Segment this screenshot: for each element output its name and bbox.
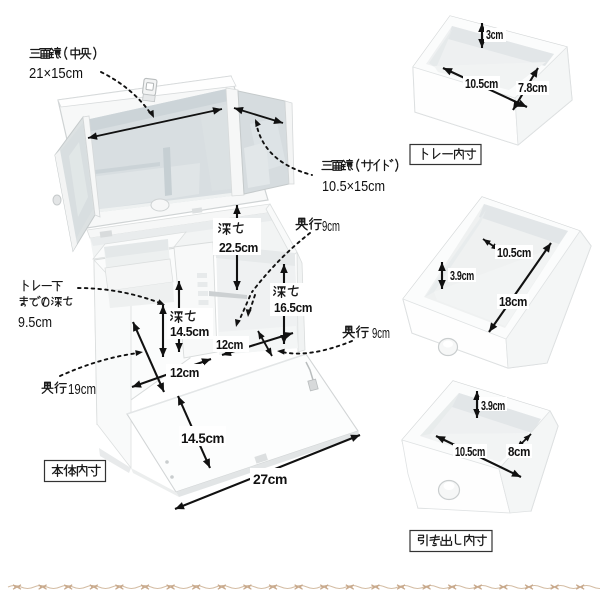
svg-text:10.5cm: 10.5cm — [455, 444, 485, 459]
svg-text:7.8cm: 7.8cm — [518, 80, 547, 95]
svg-text:8cm: 8cm — [508, 444, 530, 459]
svg-text:21×15cm: 21×15cm — [29, 65, 83, 82]
svg-text:27cm: 27cm — [253, 472, 287, 487]
svg-text:9cm: 9cm — [322, 219, 340, 235]
svg-text:3.9cm: 3.9cm — [481, 398, 505, 413]
svg-text:22.5cm: 22.5cm — [219, 240, 258, 255]
svg-text:3.9cm: 3.9cm — [450, 268, 474, 283]
svg-text:10.5cm: 10.5cm — [497, 245, 531, 260]
svg-text:12cm: 12cm — [170, 365, 199, 380]
svg-text:3cm: 3cm — [486, 27, 503, 42]
svg-text:14.5cm: 14.5cm — [181, 431, 224, 446]
svg-text:10.5×15cm: 10.5×15cm — [322, 178, 385, 195]
svg-text:16.5cm: 16.5cm — [274, 300, 312, 315]
svg-text:14.5cm: 14.5cm — [170, 324, 209, 339]
svg-text:18cm: 18cm — [499, 294, 527, 309]
svg-text:19cm: 19cm — [68, 382, 96, 398]
svg-text:12cm: 12cm — [216, 337, 243, 352]
svg-text:9.5cm: 9.5cm — [18, 314, 52, 331]
svg-text:10.5cm: 10.5cm — [465, 76, 498, 91]
svg-text:9cm: 9cm — [372, 326, 390, 342]
